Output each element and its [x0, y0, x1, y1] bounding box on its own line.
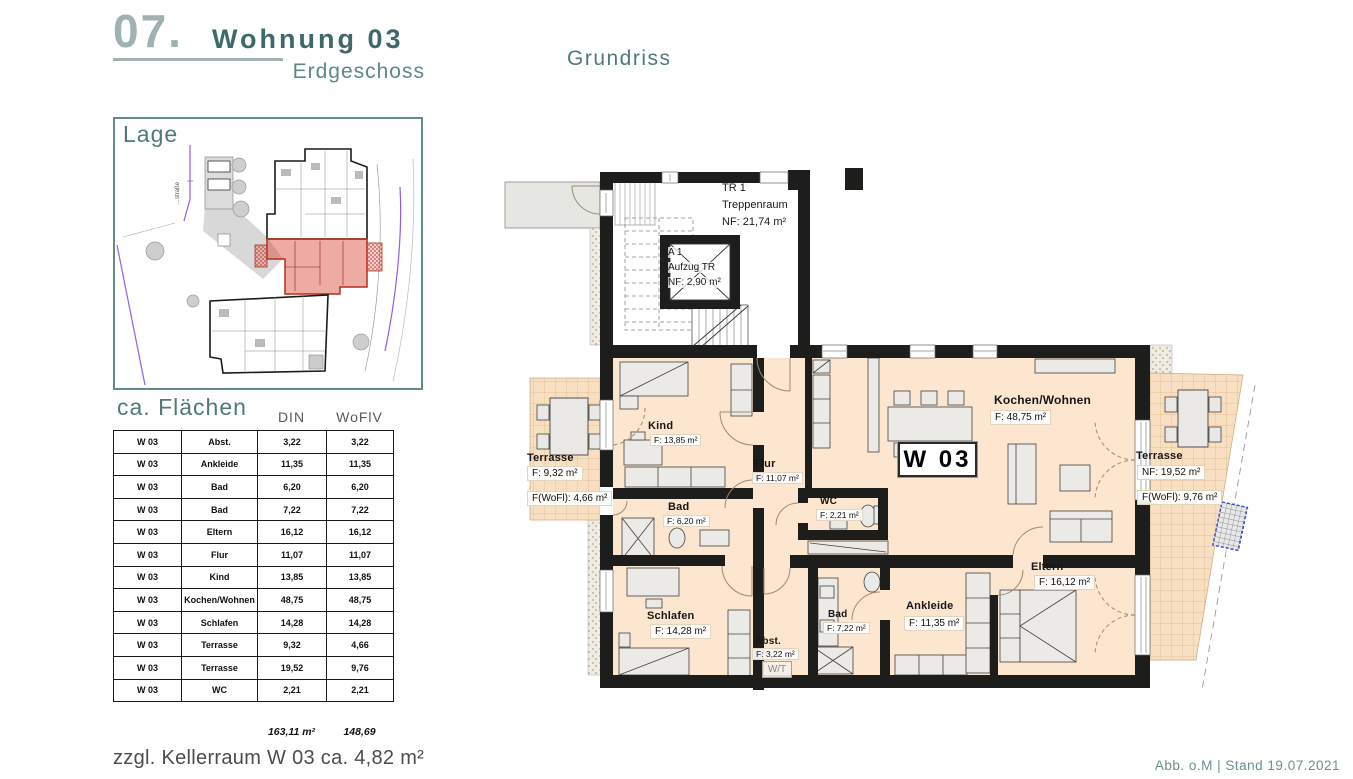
flaechen-table: W 03Abst.3,223,22 W 03Ankleide11,3511,35… — [113, 430, 394, 702]
sum-woflv: 148,69 — [326, 726, 393, 738]
area-flur: F: 11,07 m² — [752, 472, 803, 484]
table-row: W 03Kochen/Wohnen48,7548,75 — [114, 589, 394, 612]
table-row: W 03Kind13,8513,85 — [114, 566, 394, 589]
area2-terrasse-right: F(WoFl): 9,76 m² — [1137, 490, 1222, 505]
area-kind: F: 13,85 m² — [650, 434, 701, 446]
table-row: W 03WC2,212,21 — [114, 679, 394, 702]
sum-din: 163,11 m² — [257, 726, 326, 738]
area-abst: F: 3,22 m² — [752, 648, 799, 660]
table-row: W 03Eltern16,1216,12 — [114, 521, 394, 544]
floor-plan: TR 1 Treppenraum NF: 21,74 m² A 1 Aufzug… — [500, 150, 1353, 712]
room-label-terrasse-right: Terrasse — [1136, 450, 1183, 462]
table-row: W 03Schlafen14,2814,28 — [114, 611, 394, 634]
table-row: W 03Terrasse9,324,66 — [114, 634, 394, 657]
table-row: W 03Flur11,0711,07 — [114, 543, 394, 566]
grundriss-title: Grundriss — [567, 47, 672, 71]
room-label-kind: Kind — [648, 420, 673, 432]
site-building-upper — [267, 149, 367, 239]
room-label-bad1: Bad — [668, 501, 689, 513]
area-terrasse-right: NF: 19,52 m² — [1137, 465, 1205, 480]
kellerraum-note: zzgl. Kellerraum W 03 ca. 4,82 m² — [113, 747, 424, 770]
terrace-right — [1150, 373, 1255, 690]
table-row: W 03Terrasse19,529,76 — [114, 656, 394, 679]
room-label-kochen: Kochen/Wohnen — [994, 393, 1091, 407]
page-subtitle: Erdgeschoss — [240, 60, 425, 84]
footer-note: Abb. o.M | Stand 19.07.2021 — [1040, 758, 1340, 773]
area2-terrasse-left: F(WoFl): 4,66 m² — [527, 491, 612, 506]
table-row: W 03Abst.3,223,22 — [114, 431, 394, 454]
col-header-woflv: WoFlV — [326, 409, 393, 425]
lage-panel: Lage …straße — [113, 117, 423, 390]
room-label-eltern: Eltern — [1031, 561, 1063, 573]
room-label-flur: Flur — [754, 458, 776, 470]
room-label-abst: Abst. — [755, 636, 781, 647]
site-building-lower — [210, 295, 328, 373]
room-label-schlafen: Schlafen — [647, 610, 694, 622]
room-label-wc: WC — [820, 496, 837, 507]
area-bad1: F: 6,20 m² — [663, 515, 710, 527]
street-label: …straße — [175, 181, 181, 205]
site-plan: …straße — [115, 119, 421, 388]
room-label-terrasse-left: Terrasse — [527, 452, 574, 464]
page-number: 07. — [113, 4, 183, 58]
area-schlafen: F: 14,28 m² — [650, 624, 711, 639]
treppenraum-label: TR 1 Treppenraum NF: 21,74 m² — [722, 180, 788, 231]
table-row: W 03Ankleide11,3511,35 — [114, 453, 394, 476]
washer-dryer-label: W/T — [762, 661, 792, 678]
room-label-bad2: Bad — [828, 609, 848, 620]
table-row: W 03Bad7,227,22 — [114, 498, 394, 521]
aufzug-label: A 1 Aufzug TR NF: 2,90 m² — [668, 245, 721, 290]
room-label-ankleide: Ankleide — [906, 600, 953, 612]
flaechen-title: ca. Flächen — [117, 394, 247, 421]
area-bad2: F: 7,22 m² — [823, 622, 870, 634]
page-title: Wohnung 03 — [212, 24, 404, 55]
flaechen-panel: ca. Flächen DIN WoFlV W 03Abst.3,223,22 … — [113, 394, 413, 744]
area-wc: F: 2,21 m² — [816, 509, 863, 521]
area-kochen: F: 48,75 m² — [990, 410, 1051, 425]
area-ankleide: F: 11,35 m² — [904, 616, 964, 631]
col-header-din: DIN — [257, 409, 326, 425]
area-terrasse-left: F: 9,32 m² — [527, 466, 583, 481]
lage-title: Lage — [123, 121, 178, 148]
unit-badge: W 03 — [898, 442, 977, 477]
table-row: W 03Bad6,206,20 — [114, 476, 394, 499]
area-eltern: F: 16,12 m² — [1034, 575, 1095, 590]
